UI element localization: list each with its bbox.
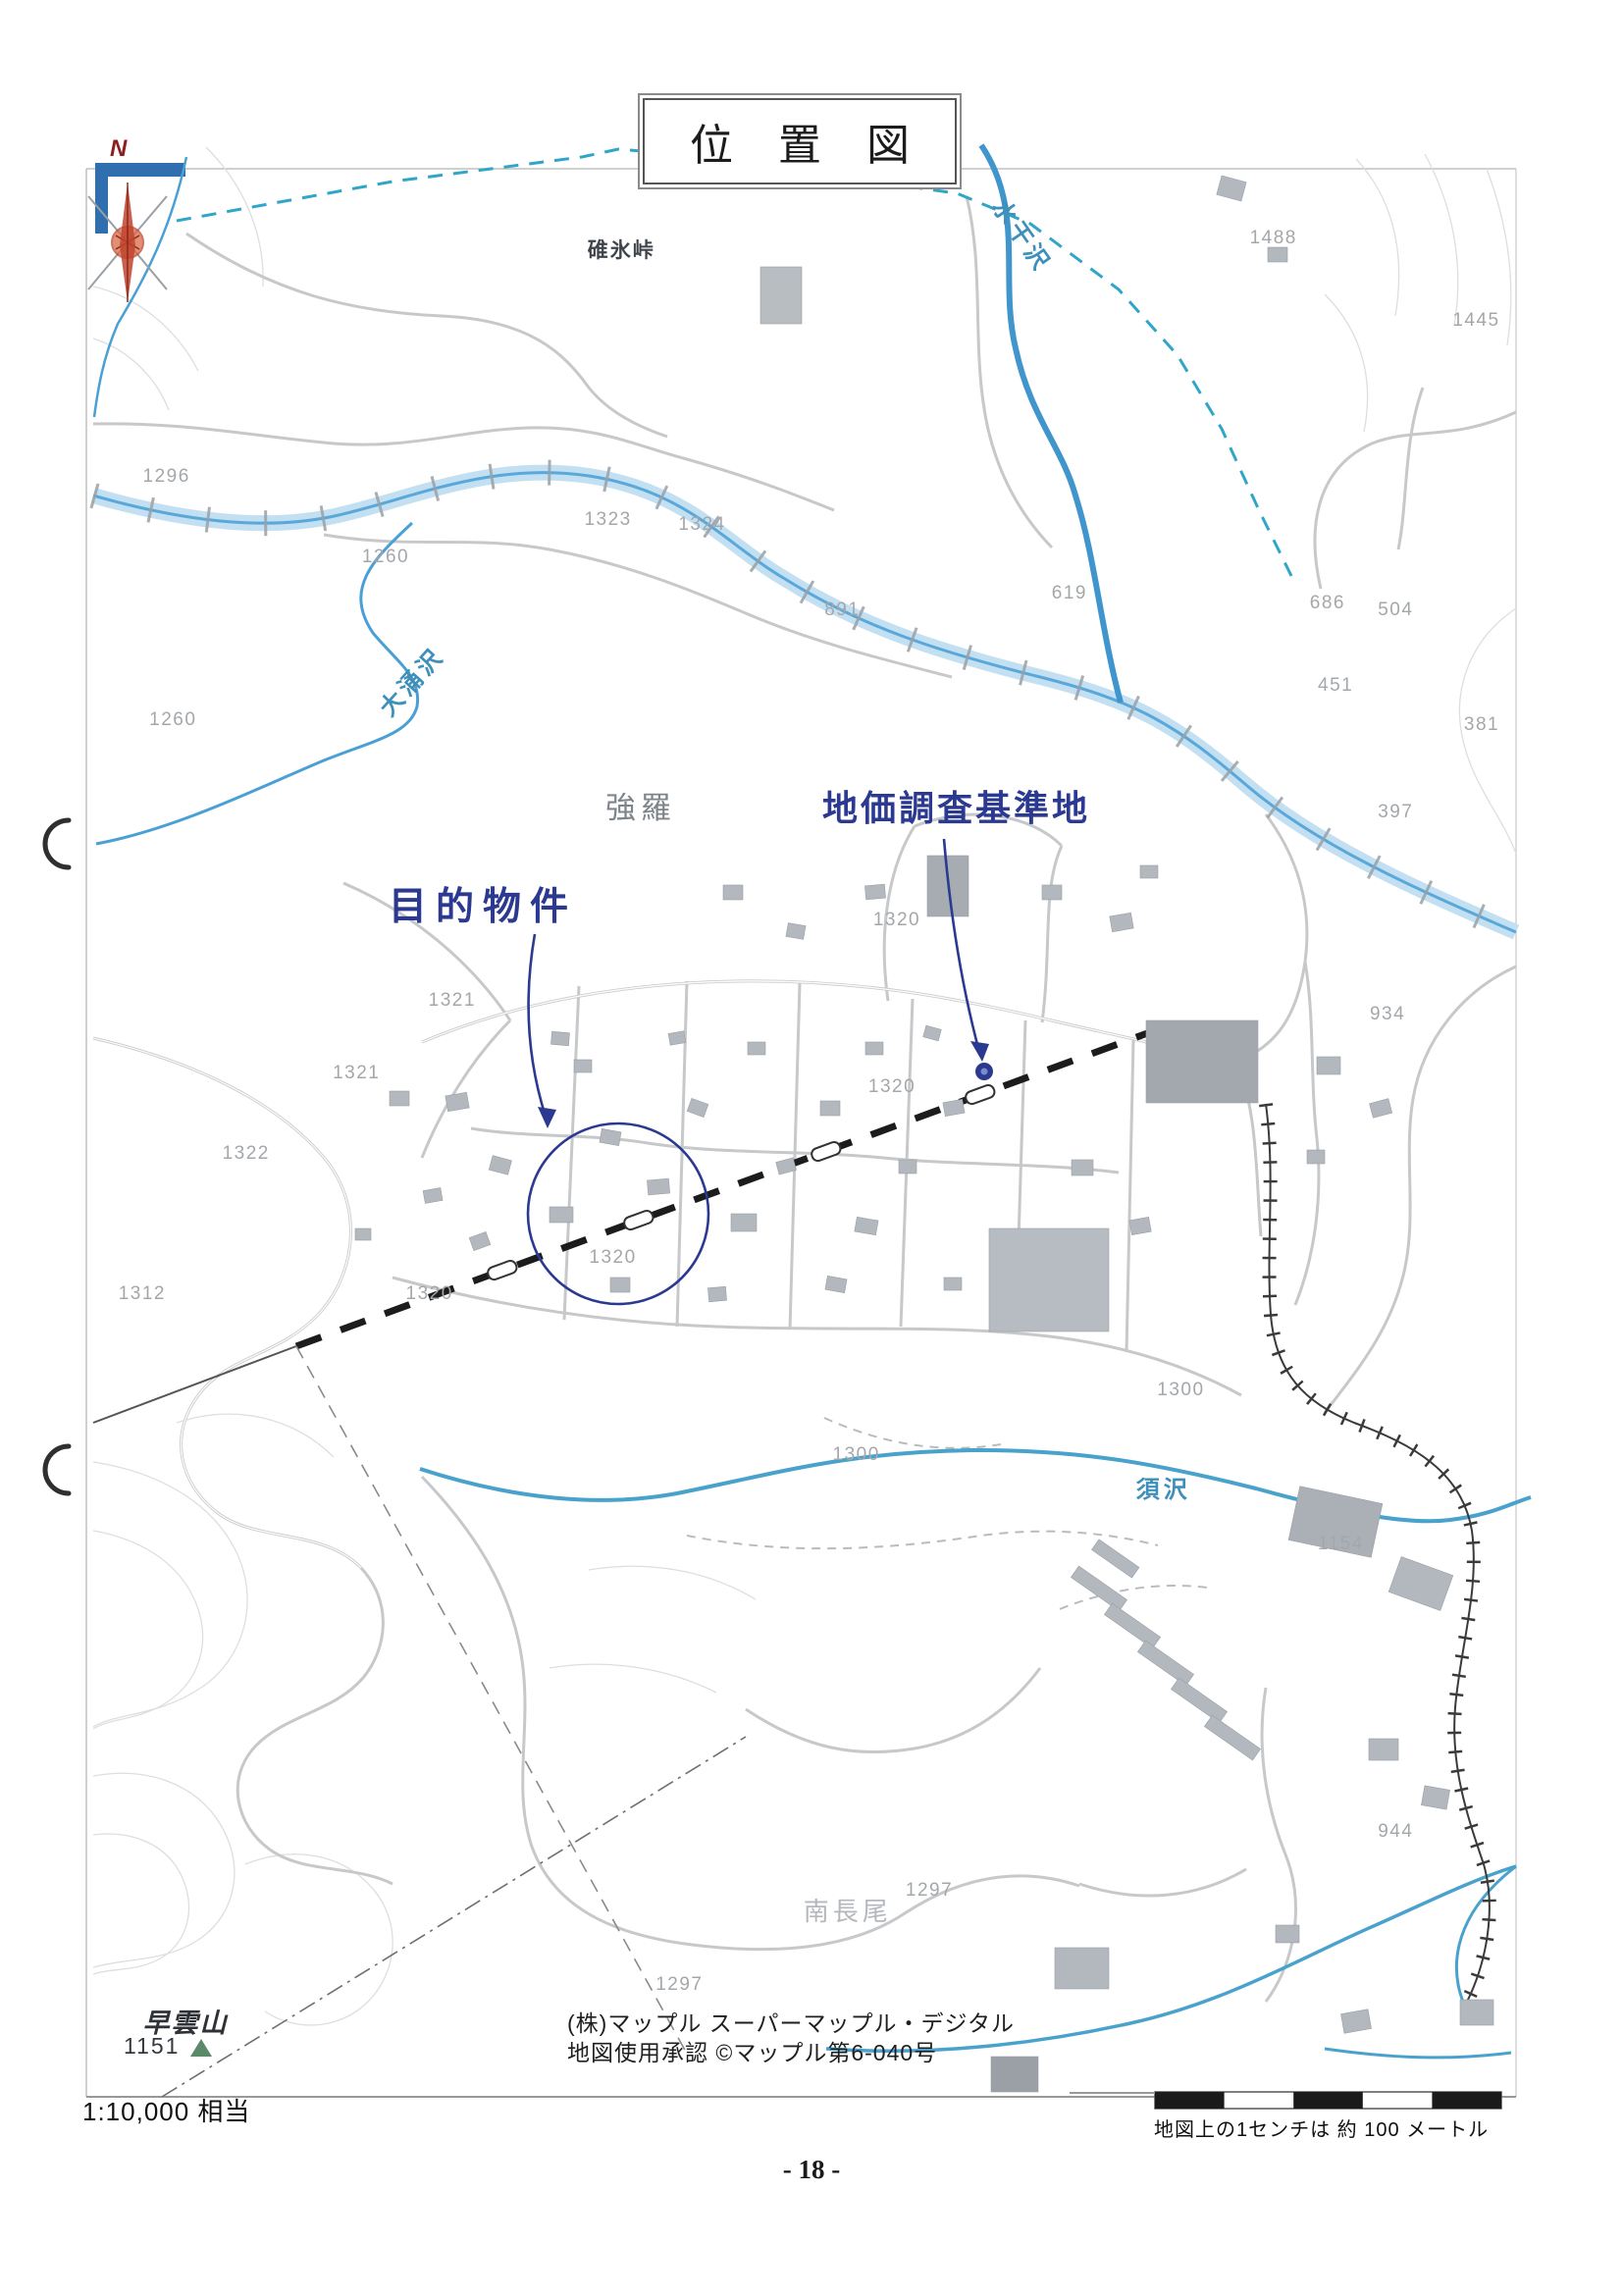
elevation-label: 451 — [1318, 675, 1353, 697]
elevation-label: 1322 — [223, 1143, 270, 1165]
elevation-label: 1320 — [406, 1283, 453, 1305]
elevation-label: 1320 — [589, 1247, 636, 1269]
elevation-label: 1300 — [833, 1444, 880, 1466]
elevation-label: 1260 — [362, 547, 409, 568]
elevation-label: 1323 — [584, 509, 631, 531]
page-number: - 18 - — [0, 2155, 1623, 2185]
scale-note: 地図上の1センチは 約 100 メートル — [1154, 2113, 1489, 2142]
elevation-label: 1297 — [906, 1880, 953, 1902]
elevation-label: 1154 — [1318, 1534, 1364, 1555]
elevation-labels: 1488144512961323132412608916196865044513… — [0, 0, 1623, 2296]
elevation-label: 1321 — [429, 990, 476, 1012]
elevation-label: 934 — [1370, 1004, 1405, 1025]
map-credits: (株)マップル スーパーマップル・デジタル 地図使用承認 ©マップル第6-040… — [567, 2009, 1015, 2068]
elevation-label: 1324 — [678, 514, 725, 536]
elevation-label: 1320 — [868, 1076, 916, 1098]
survey-point-label: 地価調査基準地 — [822, 780, 1090, 831]
elevation-label: 1297 — [655, 1974, 703, 1996]
credit-line-2: 地図使用承認 ©マップル第6-040号 — [567, 2039, 1015, 2068]
elevation-label: 1445 — [1452, 310, 1499, 332]
elevation-label: 1260 — [149, 709, 196, 731]
elevation-label: 944 — [1378, 1821, 1413, 1843]
elevation-label: 686 — [1310, 593, 1345, 614]
elevation-label: 1296 — [143, 466, 190, 488]
elevation-label: 1320 — [873, 910, 920, 931]
credit-line-1: (株)マップル スーパーマップル・デジタル — [567, 2009, 1015, 2039]
elevation-label: 891 — [824, 600, 860, 621]
elevation-label: 619 — [1052, 583, 1087, 604]
scale-ratio: 1:10,000 相当 — [82, 2092, 250, 2128]
elevation-label: 1321 — [333, 1063, 380, 1084]
elevation-label: 504 — [1378, 600, 1413, 621]
location-map-page: 位置図 N 碓氷峠強羅南長尾大涌沢水干沢須沢早雲山 14881445129613… — [0, 0, 1623, 2296]
elevation-label: 397 — [1378, 802, 1413, 823]
peak-elevation: 1151 — [124, 2033, 180, 2060]
elevation-label: 1488 — [1250, 228, 1297, 249]
elevation-label: 1300 — [1157, 1380, 1204, 1401]
target-property-label: 目的物件 — [389, 876, 577, 931]
elevation-label: 381 — [1464, 714, 1499, 736]
elevation-label: 1312 — [119, 1283, 166, 1305]
